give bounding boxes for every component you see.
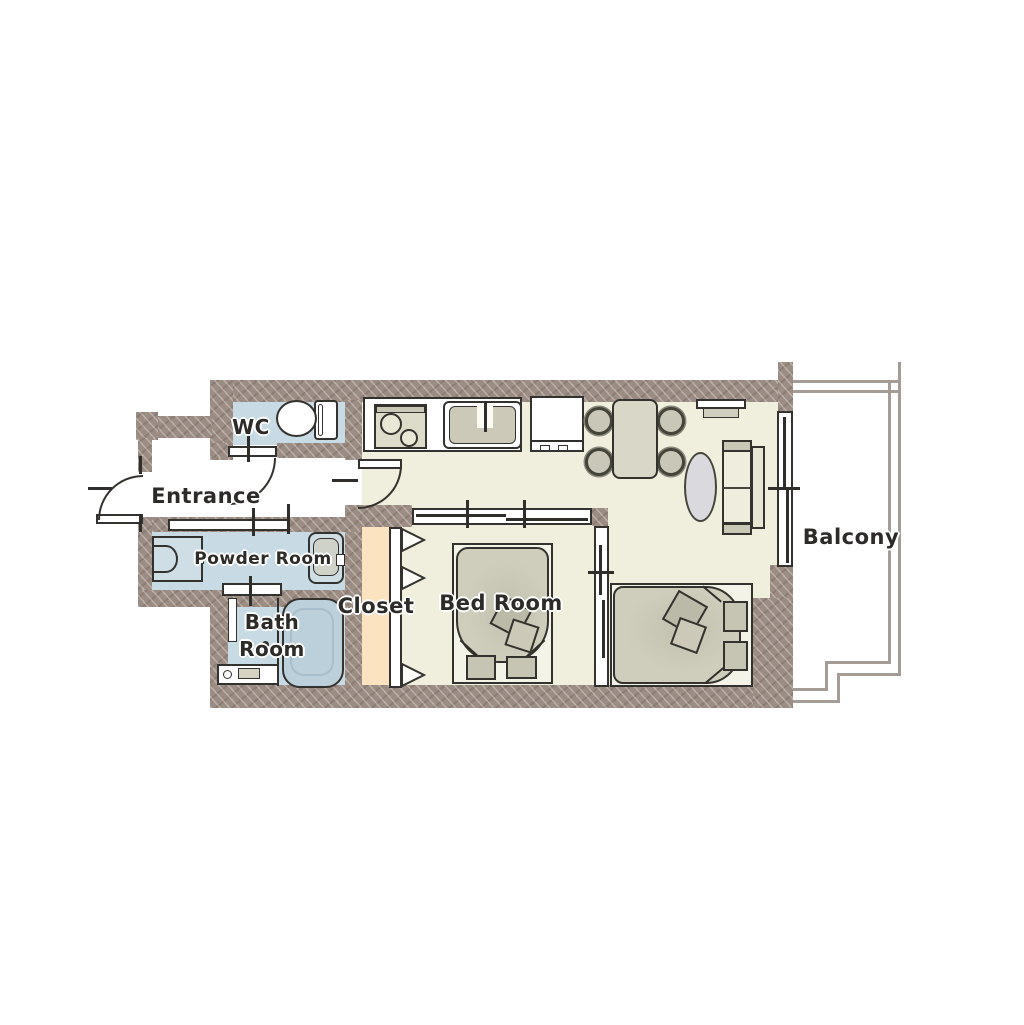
refrigerator	[530, 396, 584, 452]
bath-room-label-line1: Bath	[245, 610, 300, 634]
entrance-label: Entrance	[151, 484, 261, 508]
tick-bedroom-partition	[588, 571, 614, 574]
balcony-bottom-line-outer	[837, 673, 901, 676]
balcony-step-line-outer	[837, 673, 840, 703]
sofa-armrest-top	[722, 440, 752, 452]
stove-burner-large	[380, 413, 402, 435]
stove-grill	[376, 406, 425, 413]
bedroom-slider-panel-line-left	[416, 514, 506, 517]
dining-chair	[585, 407, 613, 435]
balcony-bottom-line-inner	[825, 661, 891, 664]
living-bed-pillow	[723, 601, 748, 632]
balcony-window-glass-line-bottom	[786, 489, 789, 563]
dining-chair	[657, 448, 685, 476]
wall-wc-bottom-left	[210, 443, 230, 458]
rug	[684, 452, 717, 522]
bed-pillow	[506, 656, 537, 679]
powder-room-label: Powder Room	[194, 549, 332, 569]
bedroom-right-panel-line-bottom	[602, 600, 605, 658]
wc-door-leaf	[228, 446, 277, 457]
closet-label: Closet	[338, 594, 415, 618]
kitchen-faucet	[484, 401, 487, 432]
refrigerator-handle-left	[540, 445, 550, 451]
bath-room-label-line2: Room	[239, 637, 305, 661]
refrigerator-line	[532, 440, 582, 442]
toilet-tank-line	[318, 404, 323, 436]
tick-powder-door-left	[252, 508, 255, 536]
tick-kitchen-door	[332, 479, 358, 482]
tick-powder-door-right	[287, 504, 290, 534]
bath-room-door	[222, 583, 282, 596]
wc-label: WC	[232, 415, 270, 439]
wall-right-corner	[753, 598, 793, 708]
sofa-armrest-bottom	[722, 523, 752, 535]
tick-bedroom-slider-1	[466, 500, 469, 528]
powder-sink-tap	[336, 554, 345, 566]
wall-hall-right-upper	[345, 400, 362, 460]
wall-right-upper	[778, 362, 793, 413]
living-bed-pillow	[723, 641, 748, 671]
tick-entrance-door-top	[139, 456, 142, 474]
refrigerator-handle-right	[558, 445, 568, 451]
dining-chair	[585, 448, 613, 476]
balcony-step-line-inner	[825, 661, 828, 691]
balcony-window-glass-line-top	[783, 417, 786, 489]
balcony-right-line-inner	[888, 380, 891, 664]
tick-balcony-window	[768, 487, 800, 490]
tick-entrance-outer	[88, 487, 112, 490]
balcony-top-line-inner	[793, 380, 901, 383]
tick-entrance-door-bottom	[139, 514, 142, 532]
sofa-back	[751, 446, 765, 529]
balcony-top-line-outer	[793, 390, 901, 393]
closet-folding-door-icon	[402, 567, 426, 589]
bath-room-door-panel	[228, 598, 237, 642]
dining-table	[612, 399, 658, 479]
wall-bedroom-pillar	[592, 508, 608, 526]
tick-bedroom-slider-2	[523, 500, 526, 528]
washing-machine-door-arc	[154, 545, 178, 573]
bath-room-label: Bath Room	[239, 609, 305, 663]
tv-stand	[703, 408, 739, 418]
bath-counter-drain	[223, 670, 232, 679]
balcony-label: Balcony	[803, 525, 899, 549]
wall-bottom	[210, 685, 793, 708]
sofa-cushion-divider	[723, 487, 751, 489]
wall-entrance-stub	[136, 412, 158, 440]
stove-burner-small	[400, 429, 418, 447]
tick-bath-door	[249, 576, 252, 606]
powder-room-sliding-door	[168, 519, 290, 531]
closet-folding-door-icon	[402, 664, 426, 686]
bath-counter-faucet	[238, 668, 260, 679]
bedroom-right-panel-line-top	[599, 545, 602, 595]
bedroom-sliding-door-top	[412, 508, 592, 525]
balcony-right-line-outer	[898, 362, 901, 676]
toilet-bowl	[276, 400, 317, 437]
closet-folding-door-icon	[402, 529, 426, 551]
bedroom-slider-panel-line-right	[506, 518, 588, 521]
entrance-door-swing-arc	[98, 475, 143, 520]
dining-chair	[657, 407, 685, 435]
floor-plan: WC Entrance Powder Room Bath Room Closet…	[0, 0, 1024, 1025]
bed-pillow	[466, 655, 496, 680]
bed-room-label: Bed Room	[439, 591, 563, 615]
